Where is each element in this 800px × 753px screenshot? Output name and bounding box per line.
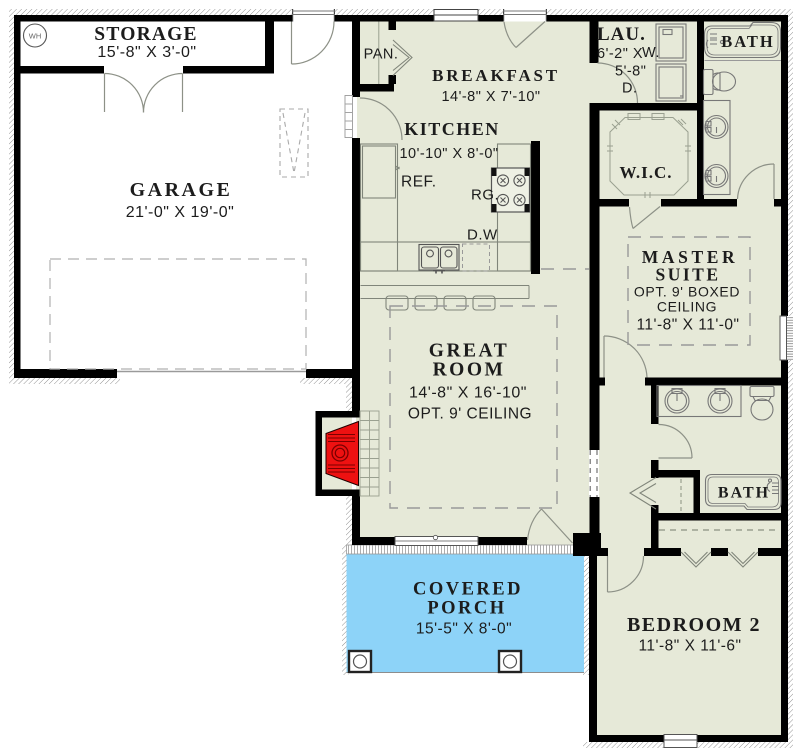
svg-text:CEILING: CEILING: [657, 299, 717, 315]
svg-text:21'-0" X 19'-0": 21'-0" X 19'-0": [126, 204, 235, 221]
svg-text:STORAGE: STORAGE: [94, 24, 197, 45]
svg-text:BREAKFAST: BREAKFAST: [432, 66, 560, 85]
svg-text:PAN.: PAN.: [364, 47, 399, 63]
svg-text:10'-10" X 8'-0": 10'-10" X 8'-0": [399, 146, 498, 162]
svg-text:GREAT: GREAT: [429, 341, 509, 362]
svg-text:11'-8" X 11'-6": 11'-8" X 11'-6": [638, 638, 741, 655]
svg-text:D.: D.: [622, 81, 638, 97]
svg-text:REF.: REF.: [401, 174, 437, 191]
svg-text:W.I.C.: W.I.C.: [619, 163, 672, 182]
svg-text:15'-8" X 3'-0": 15'-8" X 3'-0": [97, 44, 196, 61]
svg-text:OPT. 9' CEILING: OPT. 9' CEILING: [408, 406, 532, 423]
svg-text:SUITE: SUITE: [655, 265, 720, 285]
svg-text:LAU.: LAU.: [597, 24, 646, 45]
svg-text:BATH: BATH: [721, 32, 775, 51]
svg-text:WH: WH: [29, 32, 42, 41]
svg-text:ROOM: ROOM: [433, 360, 506, 381]
svg-text:COVERED: COVERED: [413, 580, 523, 600]
svg-text:14'-8" X 16'-10": 14'-8" X 16'-10": [409, 385, 527, 402]
svg-text:W.: W.: [642, 45, 660, 61]
svg-text:15'-5" X 8'-0": 15'-5" X 8'-0": [416, 621, 512, 638]
svg-text:6'-2" X: 6'-2" X: [597, 46, 643, 62]
svg-text:BATH: BATH: [718, 485, 770, 502]
svg-text:KITCHEN: KITCHEN: [404, 119, 500, 139]
svg-text:11'-8" X 11'-0": 11'-8" X 11'-0": [636, 317, 739, 334]
svg-text:OPT. 9' BOXED: OPT. 9' BOXED: [634, 284, 740, 300]
svg-text:PORCH: PORCH: [427, 599, 506, 619]
svg-text:BEDROOM 2: BEDROOM 2: [627, 614, 761, 636]
svg-text:5'-8": 5'-8": [615, 64, 646, 80]
svg-text:14'-8" X 7'-10": 14'-8" X 7'-10": [441, 89, 540, 105]
svg-text:RG.: RG.: [471, 187, 499, 204]
svg-text:GARAGE: GARAGE: [130, 179, 233, 201]
svg-text:D.W: D.W: [467, 227, 498, 244]
